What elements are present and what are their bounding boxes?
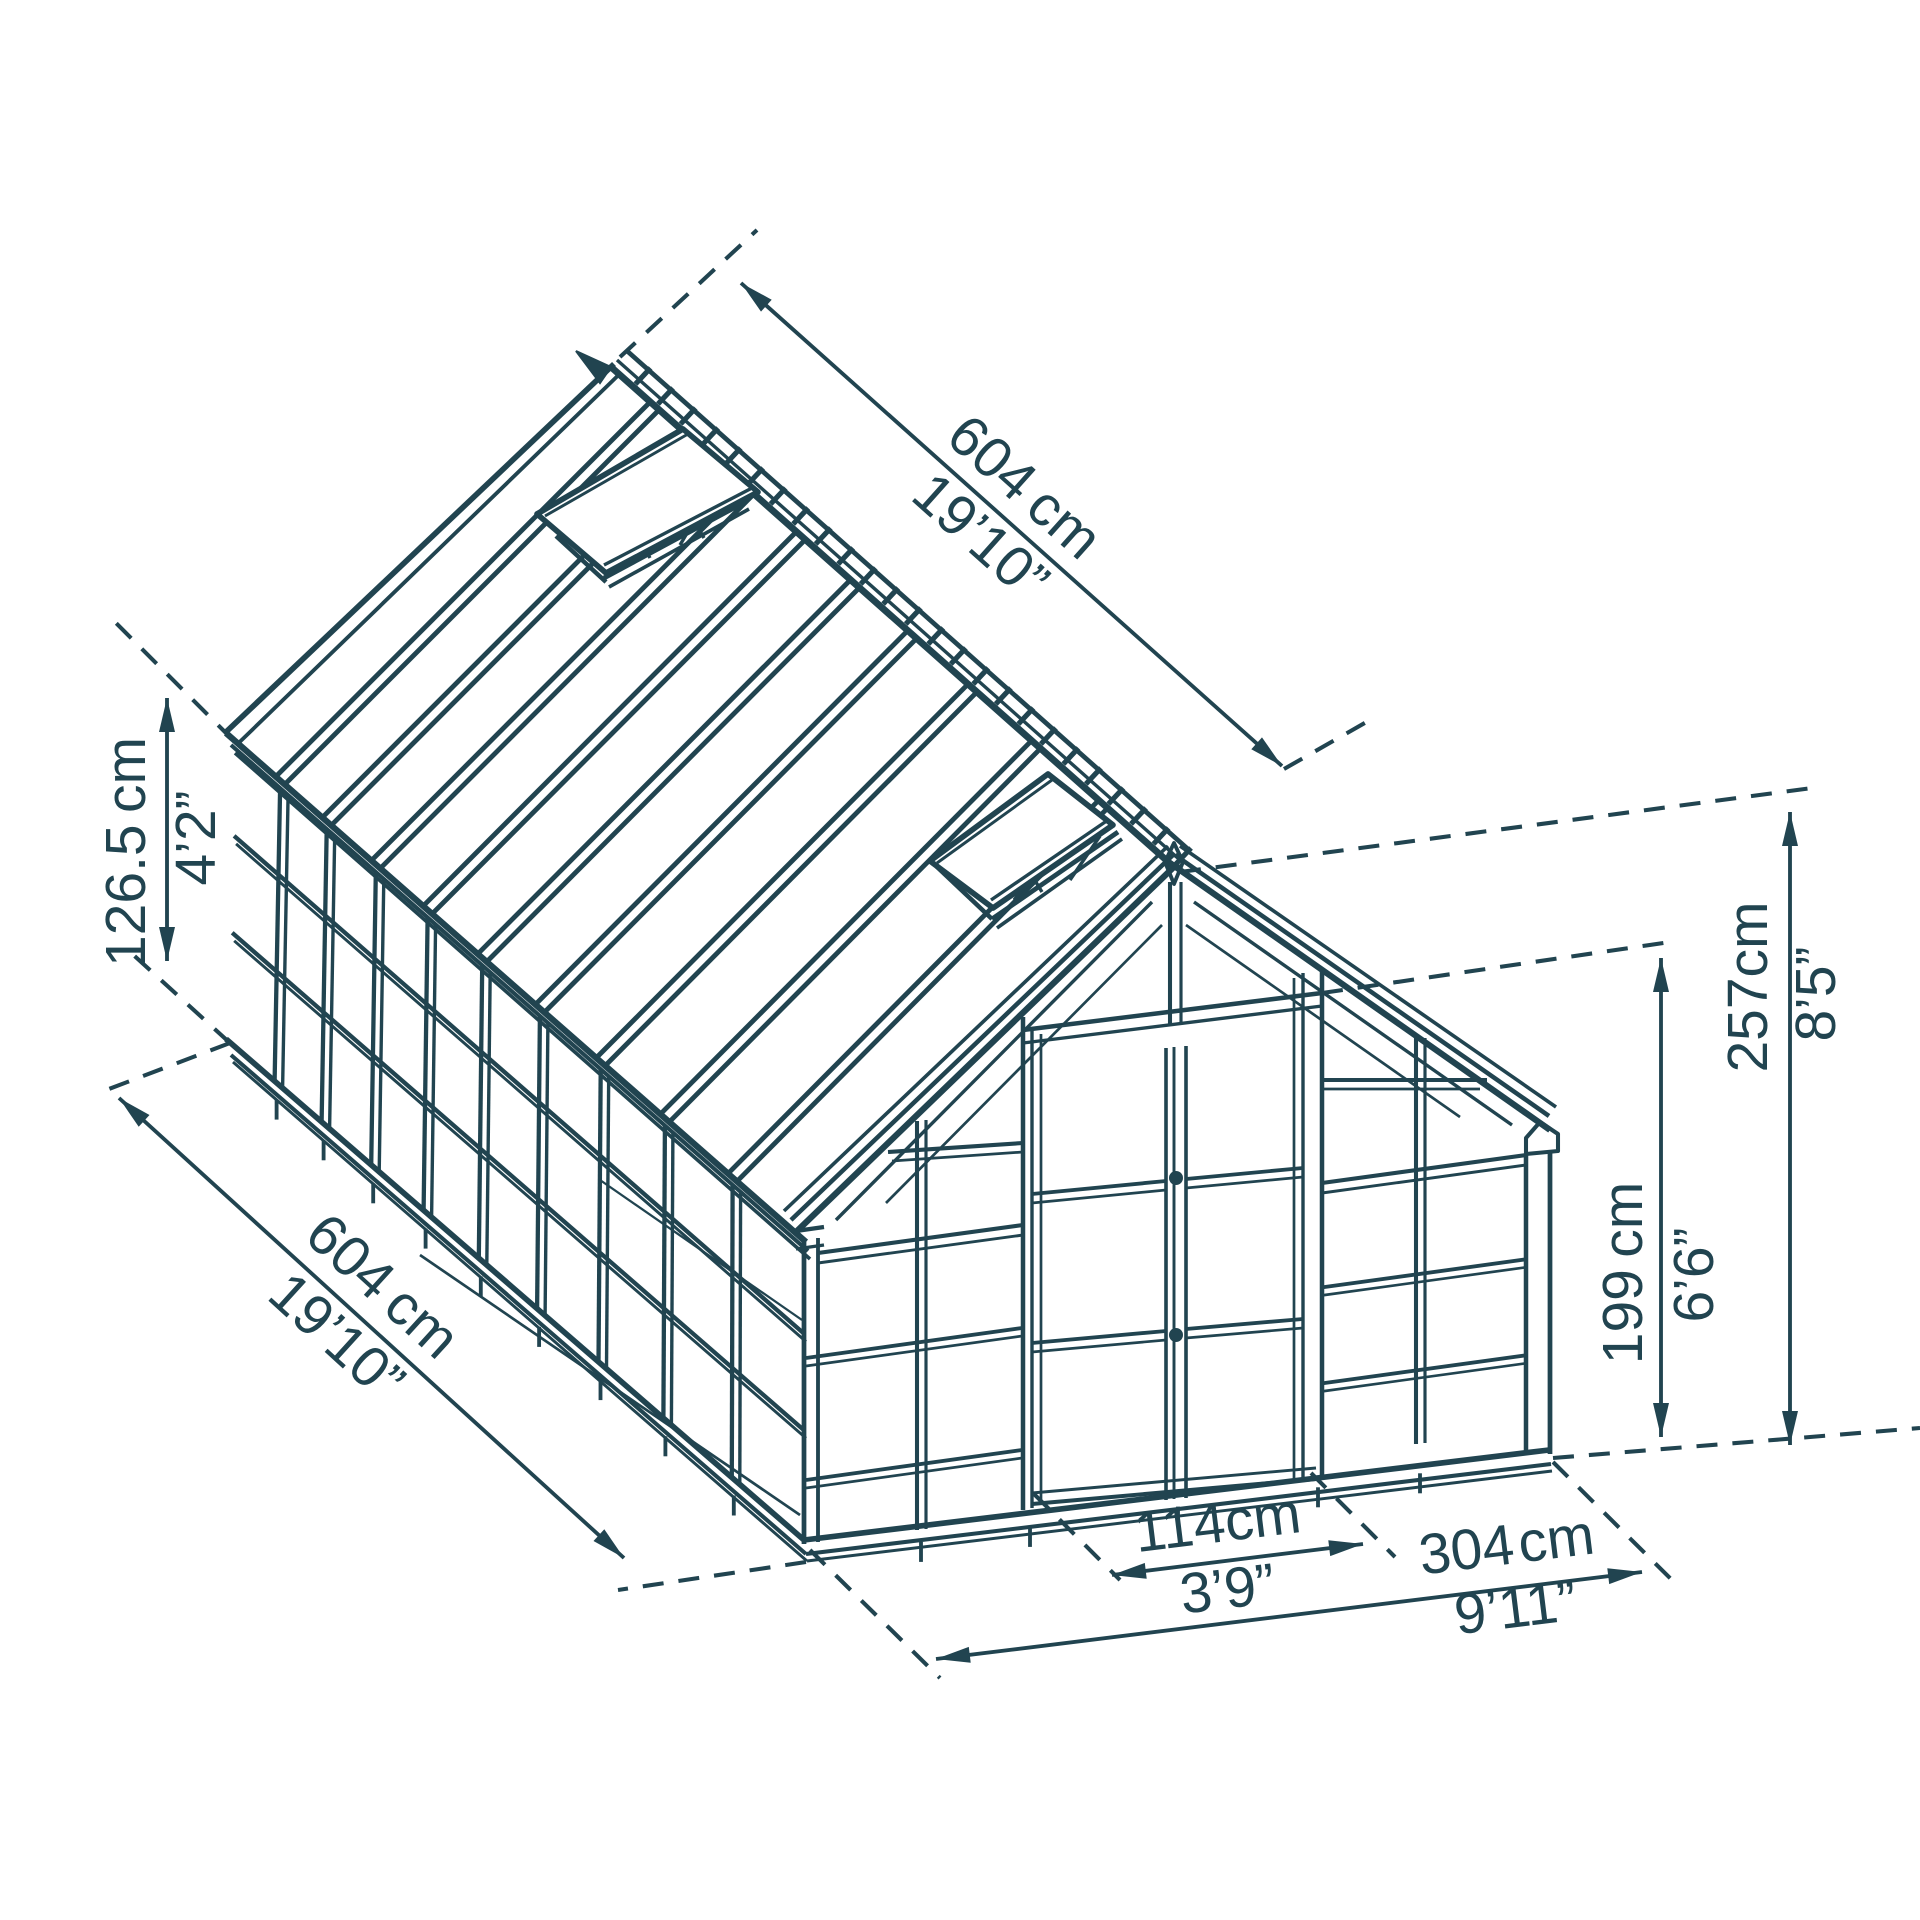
svg-text:3’9”: 3’9” xyxy=(1176,1552,1278,1627)
svg-text:257cm: 257cm xyxy=(1716,901,1780,1072)
svg-text:4’2”: 4’2” xyxy=(164,790,228,885)
svg-text:126.5 cm: 126.5 cm xyxy=(94,737,158,967)
svg-text:8’5”: 8’5” xyxy=(1784,946,1848,1041)
svg-text:6’6”: 6’6” xyxy=(1662,1227,1726,1322)
svg-text:199 cm: 199 cm xyxy=(1591,1182,1655,1365)
